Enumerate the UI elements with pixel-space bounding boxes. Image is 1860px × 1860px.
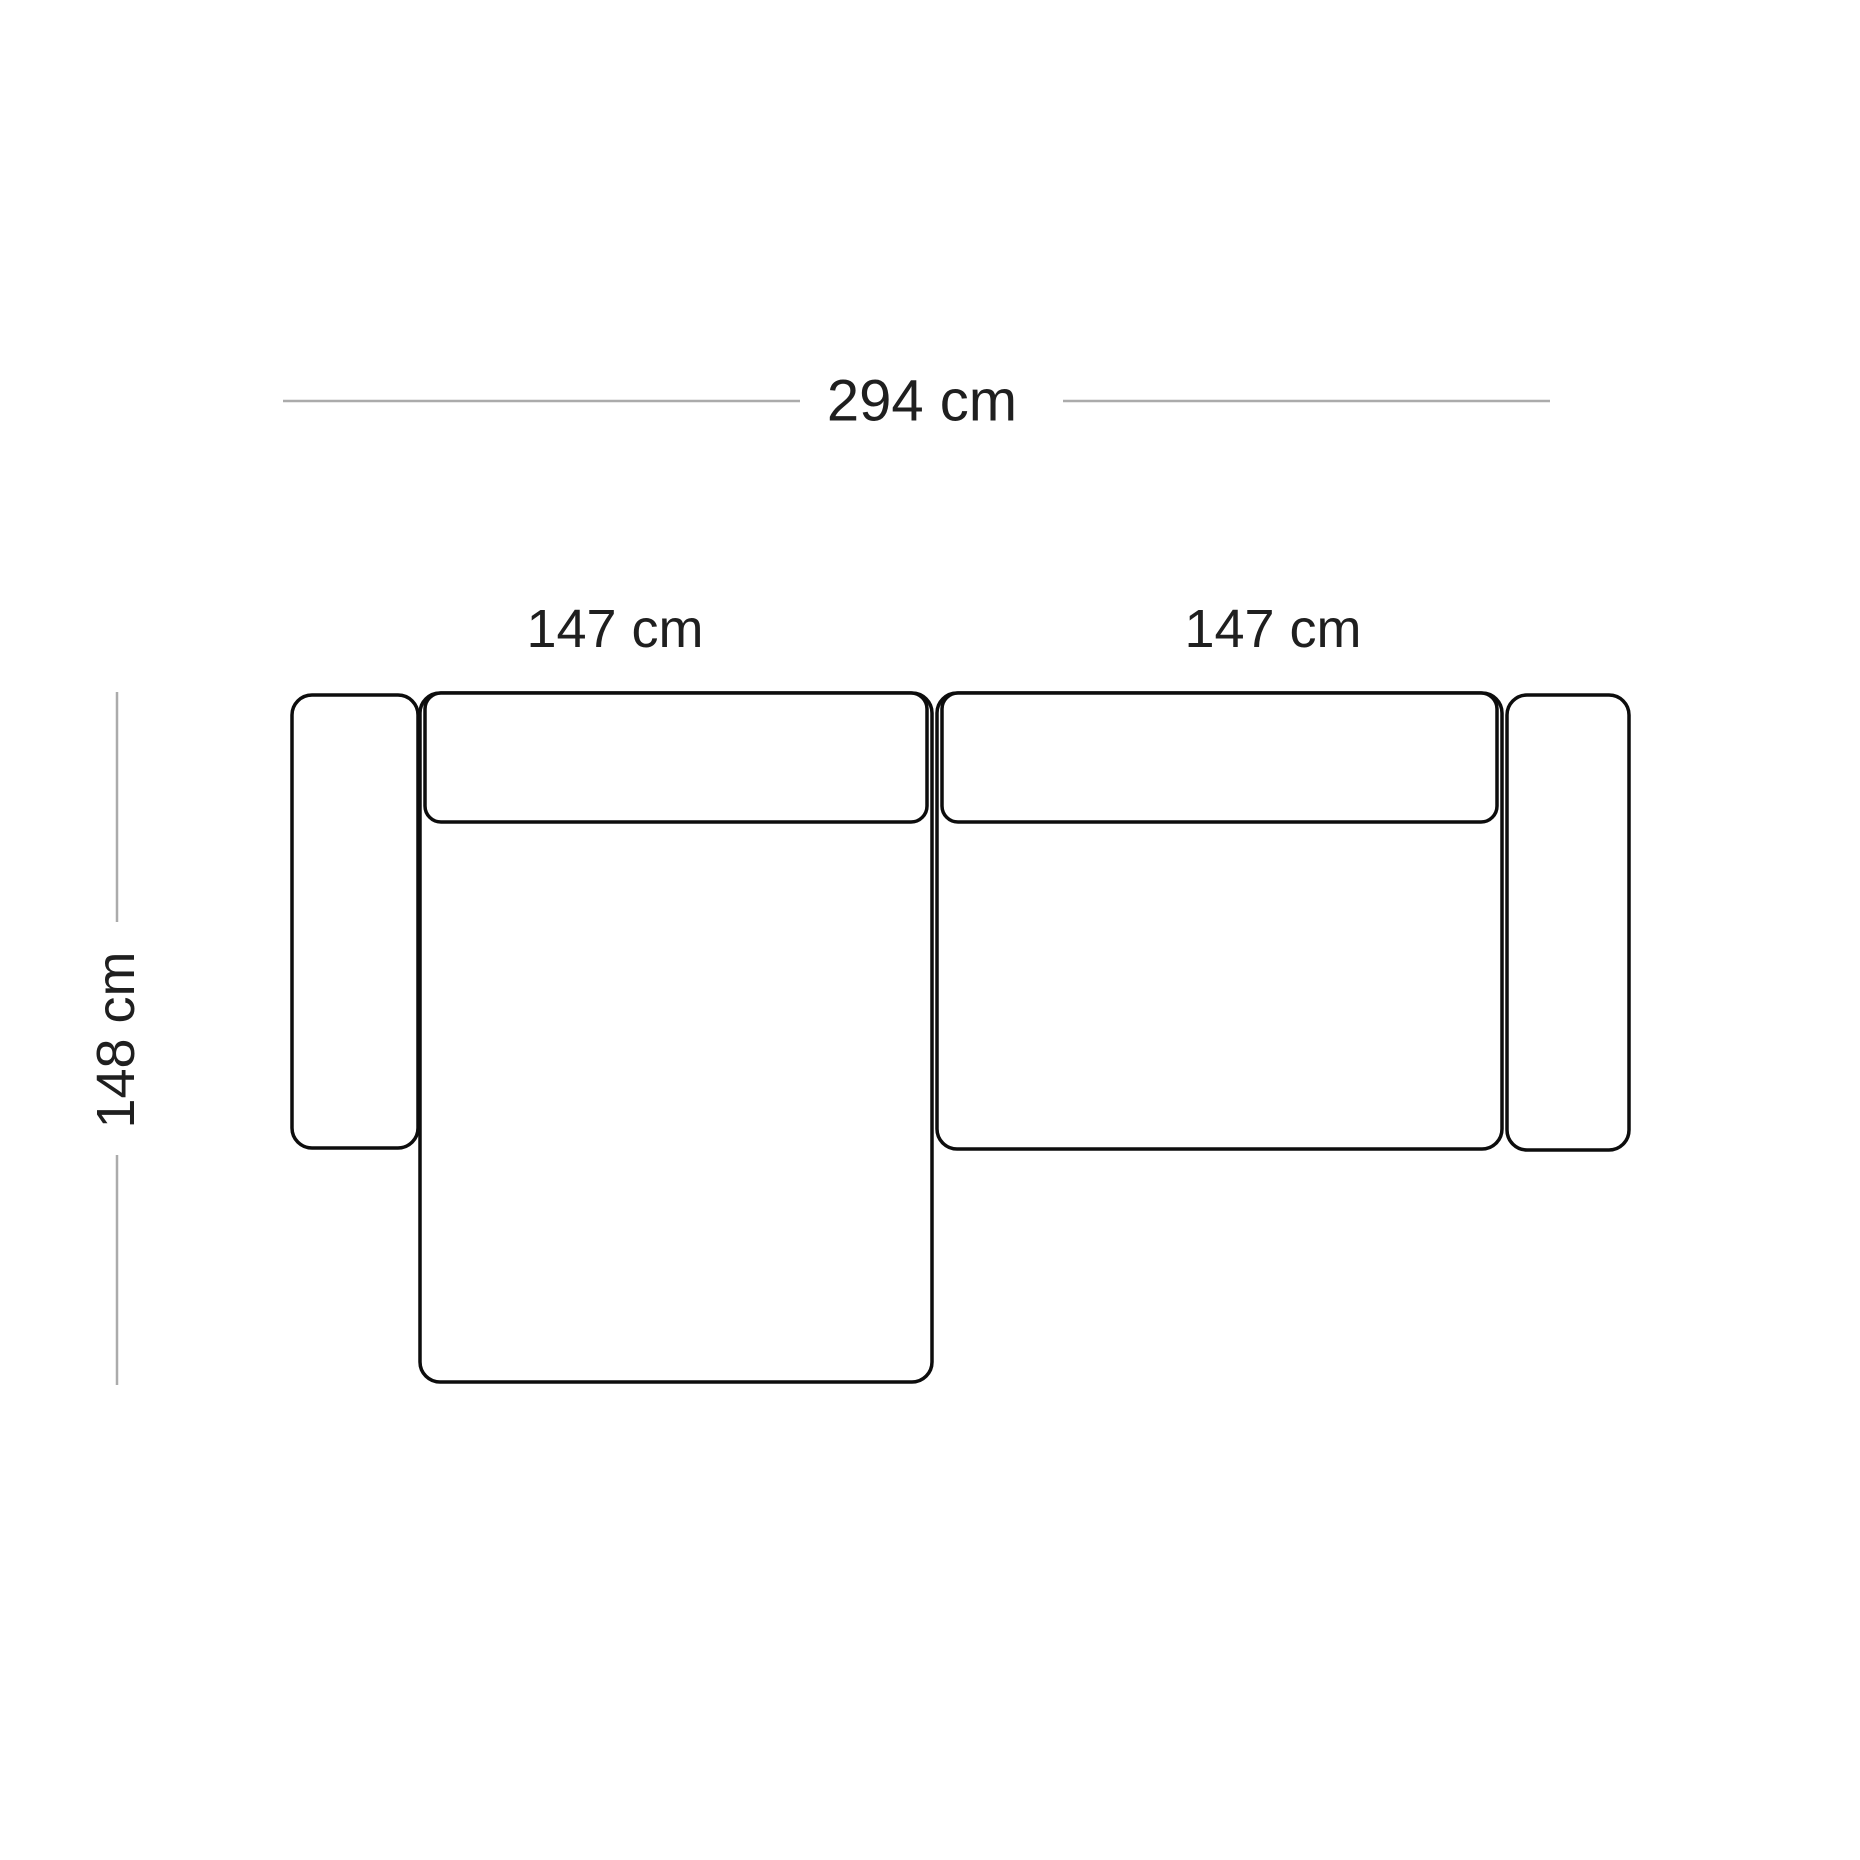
left-armrest [292,695,418,1148]
right-module-width-label: 147 cm [1184,598,1361,660]
diagram-drawing [0,0,1860,1860]
right-armrest [1507,695,1629,1150]
chaise-backrest-cushion [425,693,927,822]
sofa-outline [292,693,1629,1382]
left-module-width-label: 147 cm [526,598,703,660]
total-width-label: 294 cm [827,368,1017,435]
sofa-dimension-diagram: 294 cm 147 cm 147 cm 148 cm [0,0,1860,1860]
right-backrest-cushion [942,693,1497,822]
depth-label: 148 cm [85,951,147,1128]
